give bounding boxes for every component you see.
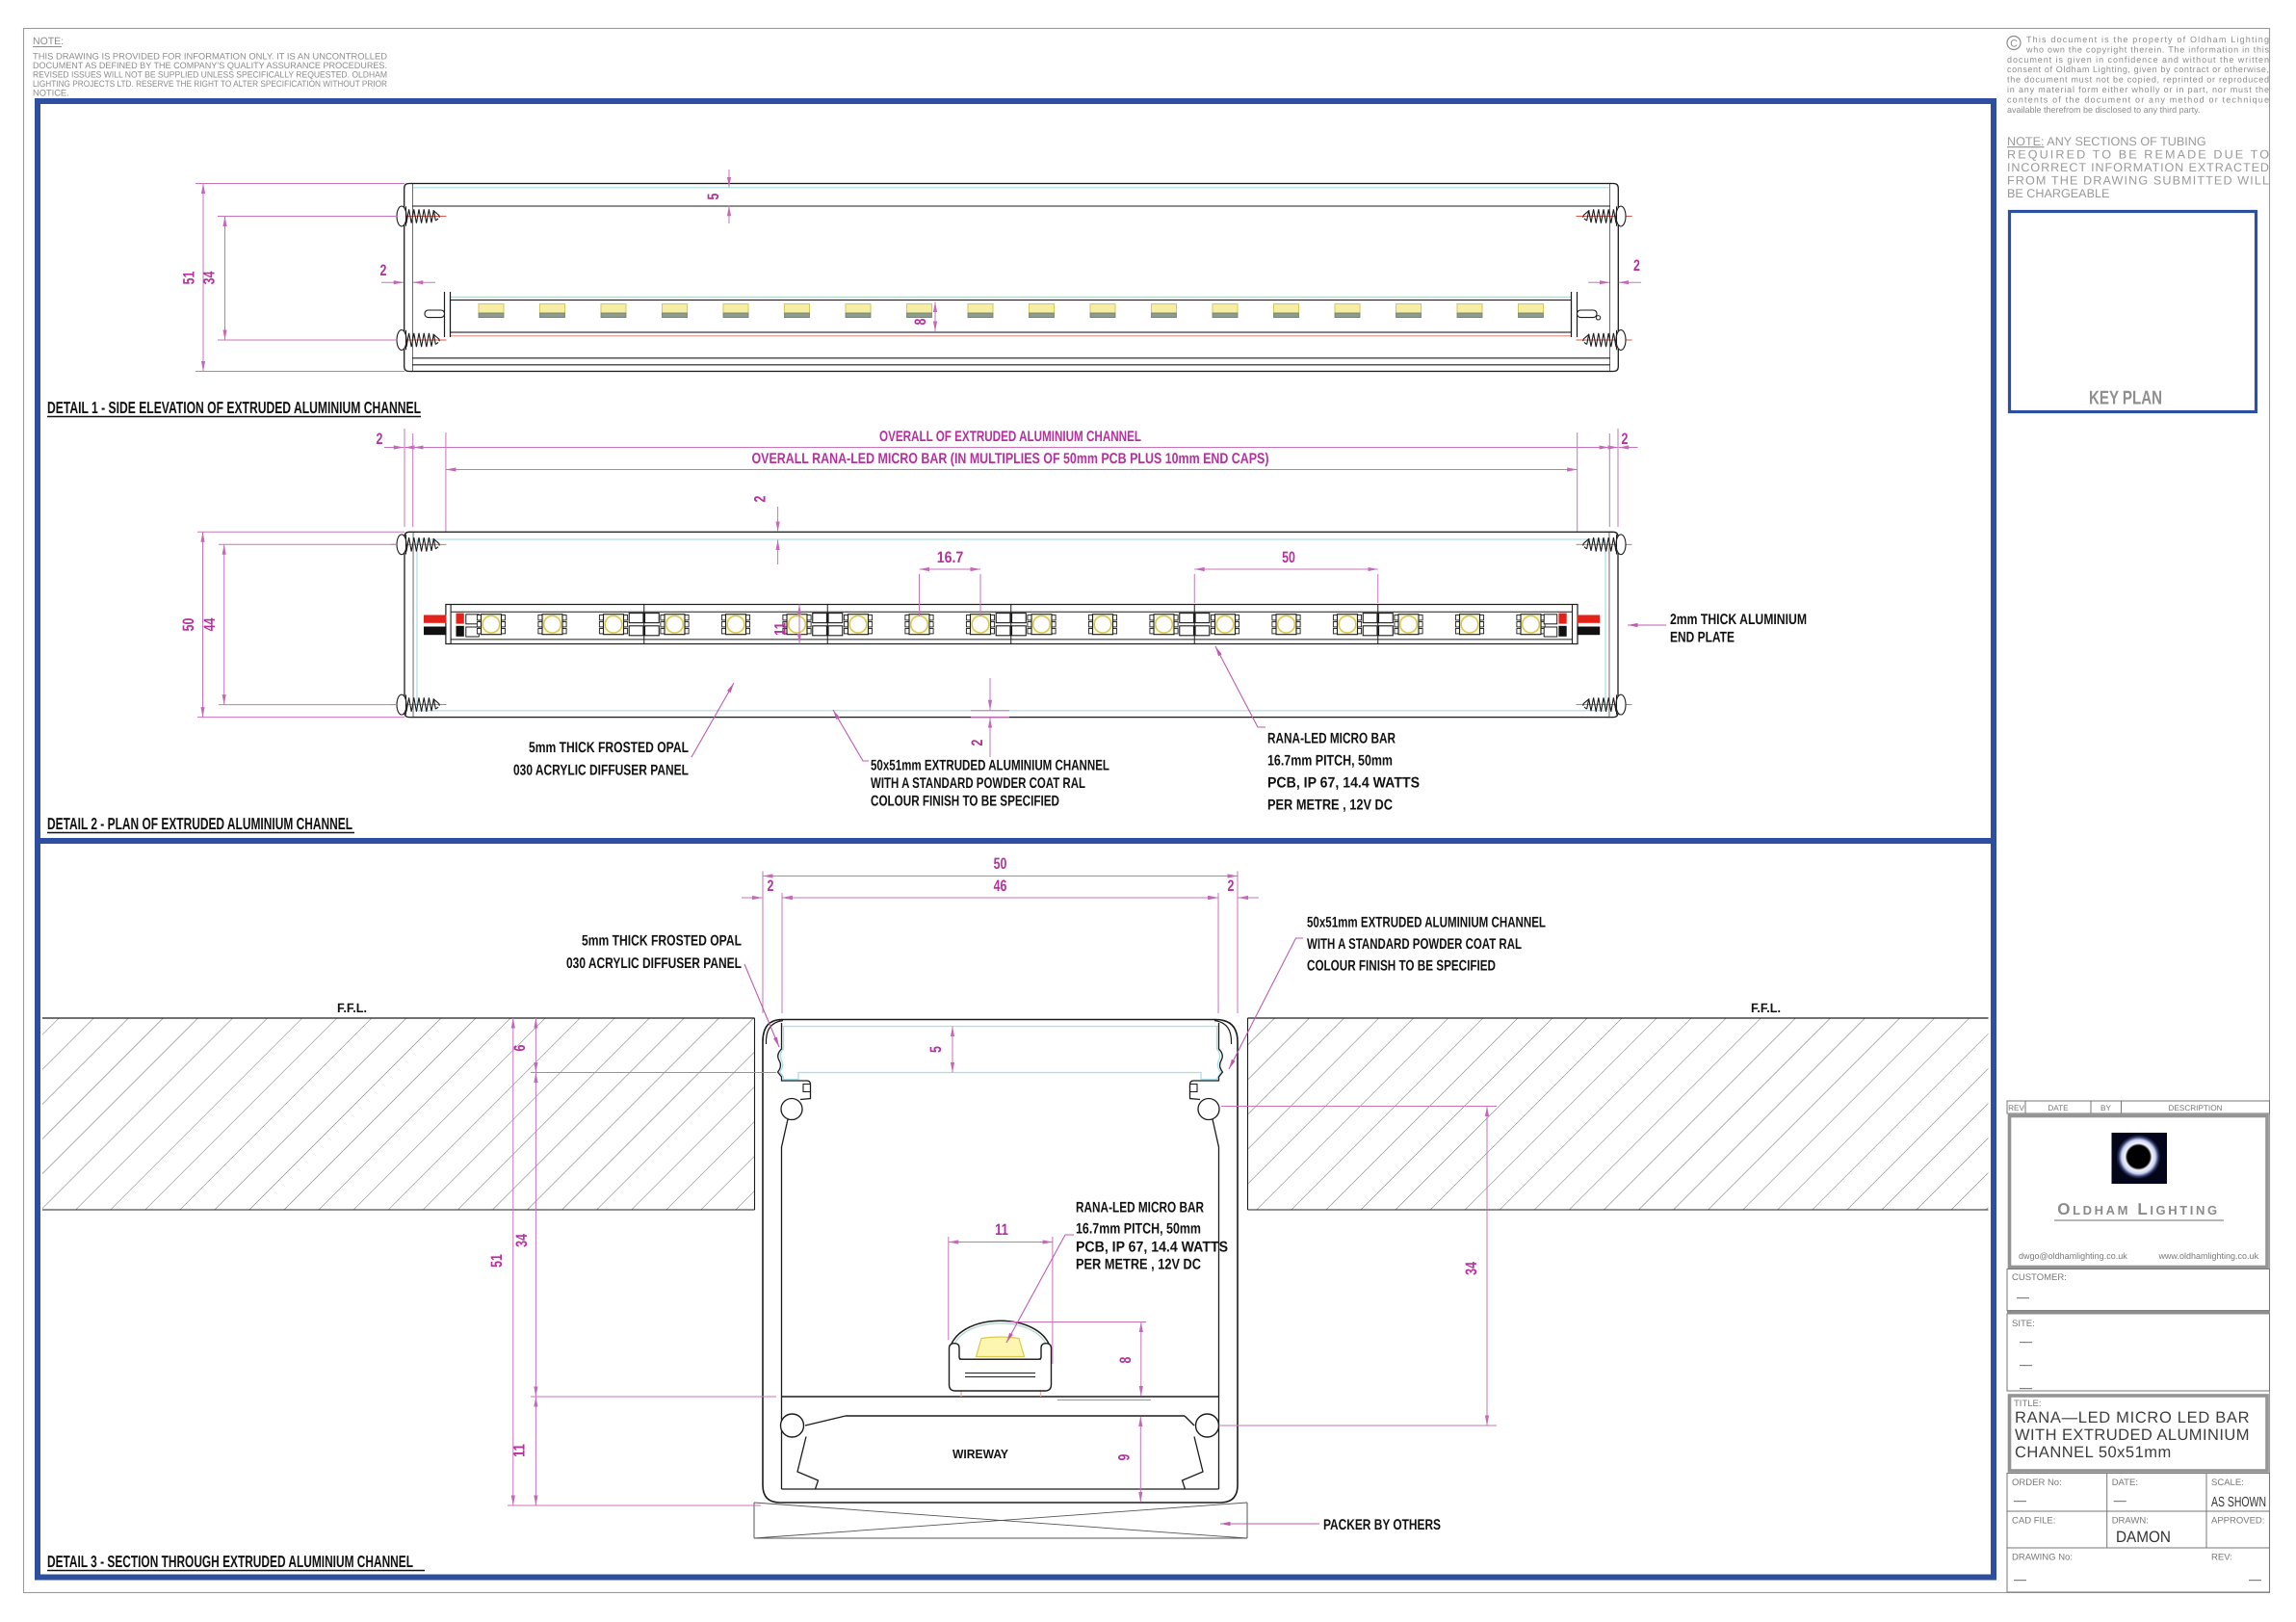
svg-text:6: 6 bbox=[511, 1045, 529, 1052]
svg-text:DAMON: DAMON bbox=[2116, 1529, 2171, 1546]
svg-text:This document is the property: This document is the property of Oldham … bbox=[2026, 35, 2269, 44]
svg-text:50: 50 bbox=[1282, 549, 1295, 566]
svg-text:—: — bbox=[2014, 1572, 2026, 1586]
svg-text:DETAIL 3 - SECTION THROUGH EXT: DETAIL 3 - SECTION THROUGH EXTRUDED ALUM… bbox=[47, 1552, 413, 1571]
svg-text:WIREWAY: WIREWAY bbox=[952, 1447, 1008, 1461]
svg-text:2mm THICK ALUMINIUM: 2mm THICK ALUMINIUM bbox=[1670, 612, 1807, 628]
svg-text:50: 50 bbox=[180, 618, 197, 632]
svg-text:2: 2 bbox=[377, 431, 383, 448]
svg-text:available therefrom be disclos: available therefrom be disclosed to any … bbox=[2007, 105, 2200, 115]
svg-text:COLOUR FINISH TO BE SPECIFIED: COLOUR FINISH TO BE SPECIFIED bbox=[1307, 958, 1496, 975]
svg-text:DOCUMENT AS DEFINED BY THE COM: DOCUMENT AS DEFINED BY THE COMPANY’S QUA… bbox=[33, 61, 387, 70]
svg-text:APPROVED:: APPROVED: bbox=[2211, 1516, 2264, 1527]
svg-text:BE CHARGEABLE: BE CHARGEABLE bbox=[2007, 187, 2109, 200]
svg-text:DETAIL 2 - PLAN OF EXTRUDED AL: DETAIL 2 - PLAN OF EXTRUDED ALUMINIUM CH… bbox=[47, 814, 352, 833]
svg-text:44: 44 bbox=[201, 617, 219, 631]
svg-text:CUSTOMER:: CUSTOMER: bbox=[2012, 1272, 2067, 1283]
svg-text:2: 2 bbox=[1622, 431, 1629, 448]
svg-text:INCORRECT INFORMATION EXTRACTE: INCORRECT INFORMATION EXTRACTED bbox=[2007, 161, 2269, 174]
svg-text:document is given in confidenc: document is given in confidence and with… bbox=[2007, 55, 2269, 65]
svg-text:WITH A STANDARD POWDER COAT RA: WITH A STANDARD POWDER COAT RAL bbox=[871, 775, 1085, 792]
svg-text:PACKER BY OTHERS: PACKER BY OTHERS bbox=[1323, 1517, 1441, 1533]
svg-text:RANA—LED MICRO LED BAR: RANA—LED MICRO LED BAR bbox=[2015, 1409, 2250, 1426]
svg-text:—: — bbox=[2249, 1572, 2261, 1586]
svg-text:34: 34 bbox=[201, 271, 219, 284]
svg-text:THIS DRAWING IS PROVIDED FOR I: THIS DRAWING IS PROVIDED FOR INFORMATION… bbox=[33, 51, 387, 61]
svg-text:50x51mm EXTRUDED ALUMINIUM CHA: 50x51mm EXTRUDED ALUMINIUM CHANNEL bbox=[1307, 915, 1546, 931]
svg-text:16.7: 16.7 bbox=[937, 549, 964, 566]
svg-text:BY: BY bbox=[2100, 1104, 2111, 1112]
svg-text:11: 11 bbox=[511, 1444, 529, 1457]
svg-text:RANA-LED MICRO BAR: RANA-LED MICRO BAR bbox=[1076, 1200, 1204, 1216]
svg-text:CHANNEL 50x51mm: CHANNEL 50x51mm bbox=[2015, 1444, 2172, 1461]
svg-text:—: — bbox=[2014, 1493, 2026, 1507]
svg-text:DRAWING No:: DRAWING No: bbox=[2012, 1553, 2073, 1563]
svg-text:2: 2 bbox=[969, 740, 986, 746]
svg-text:AS SHOWN: AS SHOWN bbox=[2211, 1495, 2266, 1510]
svg-text:51: 51 bbox=[488, 1254, 506, 1268]
svg-text:SCALE:: SCALE: bbox=[2211, 1478, 2244, 1488]
svg-text:51: 51 bbox=[181, 272, 198, 285]
svg-text:www.oldhamlighting.co.uk: www.oldhamlighting.co.uk bbox=[2157, 1251, 2258, 1261]
svg-text:PER METRE , 12V DC: PER METRE , 12V DC bbox=[1076, 1257, 1201, 1273]
svg-text:030 ACRYLIC DIFFUSER PANEL: 030 ACRYLIC DIFFUSER PANEL bbox=[513, 763, 689, 779]
svg-text:030 ACRYLIC DIFFUSER PANEL: 030 ACRYLIC DIFFUSER PANEL bbox=[566, 955, 742, 972]
svg-text:REVISED ISSUES WILL NOT BE SUP: REVISED ISSUES WILL NOT BE SUPPLIED UNLE… bbox=[33, 70, 387, 80]
svg-text:PER METRE , 12V DC: PER METRE , 12V DC bbox=[1267, 798, 1393, 814]
svg-text:8: 8 bbox=[912, 319, 929, 326]
svg-text:2: 2 bbox=[768, 877, 774, 895]
svg-text:2: 2 bbox=[752, 496, 770, 503]
svg-text:dwgo@oldhamlighting.co.uk: dwgo@oldhamlighting.co.uk bbox=[2019, 1251, 2127, 1261]
svg-text:NOTE:: NOTE: bbox=[33, 36, 64, 47]
svg-text:34: 34 bbox=[513, 1233, 531, 1246]
svg-text:KEY PLAN: KEY PLAN bbox=[2089, 388, 2162, 409]
svg-text:CAD FILE:: CAD FILE: bbox=[2012, 1516, 2055, 1527]
svg-text:50: 50 bbox=[994, 855, 1007, 873]
svg-text:50x51mm EXTRUDED ALUMINIUM CHA: 50x51mm EXTRUDED ALUMINIUM CHANNEL bbox=[871, 758, 1109, 774]
svg-text:ORDER No:: ORDER No: bbox=[2012, 1478, 2062, 1488]
svg-text:NOTICE.: NOTICE. bbox=[33, 89, 69, 98]
svg-text:16.7mm PITCH, 50mm: 16.7mm PITCH, 50mm bbox=[1076, 1221, 1201, 1238]
svg-text:who own the copyright therein.: who own the copyright therein. The infor… bbox=[2025, 44, 2270, 54]
svg-text:16.7mm PITCH, 50mm: 16.7mm PITCH, 50mm bbox=[1267, 753, 1393, 770]
svg-text:—: — bbox=[2020, 1357, 2032, 1372]
svg-text:TITLE:: TITLE: bbox=[2014, 1399, 2042, 1409]
svg-text:WITH A STANDARD POWDER COAT RA: WITH A STANDARD POWDER COAT RAL bbox=[1307, 936, 1522, 953]
svg-text:F.F.L.: F.F.L. bbox=[337, 1001, 367, 1015]
svg-text:—: — bbox=[2114, 1493, 2126, 1507]
svg-text:C: C bbox=[2010, 38, 2018, 49]
svg-text:DETAIL 1 - SIDE ELEVATION OF E: DETAIL 1 - SIDE ELEVATION OF EXTRUDED AL… bbox=[47, 398, 421, 417]
svg-text:REQUIRED TO BE REMADE DUE TO: REQUIRED TO BE REMADE DUE TO bbox=[2007, 148, 2269, 162]
svg-text:—: — bbox=[2020, 1380, 2032, 1395]
svg-text:DATE: DATE bbox=[2048, 1104, 2069, 1112]
svg-text:NOTE: ANY SECTIONS OF TUBING: NOTE: ANY SECTIONS OF TUBING bbox=[2007, 135, 2206, 148]
svg-text:DRAWN:: DRAWN: bbox=[2112, 1516, 2149, 1527]
svg-text:PCB, IP 67, 14.4 WATTS: PCB, IP 67, 14.4 WATTS bbox=[1267, 775, 1420, 792]
svg-text:—: — bbox=[2020, 1334, 2032, 1348]
svg-text:5: 5 bbox=[705, 194, 722, 200]
svg-text:F.F.L.: F.F.L. bbox=[1751, 1001, 1781, 1015]
svg-text:11: 11 bbox=[772, 622, 790, 636]
svg-text:REV:: REV: bbox=[2211, 1553, 2232, 1563]
svg-text:PCB, IP 67, 14.4 WATTS: PCB, IP 67, 14.4 WATTS bbox=[1076, 1240, 1228, 1256]
svg-text:46: 46 bbox=[994, 877, 1007, 895]
svg-text:the document must not be copie: the document must not be copied, reprint… bbox=[2007, 75, 2269, 85]
svg-text:LIGHTING PROJECTS LTD. RESERVE: LIGHTING PROJECTS LTD. RESERVE THE RIGHT… bbox=[33, 79, 387, 89]
svg-text:2: 2 bbox=[380, 262, 387, 279]
svg-text:DATE:: DATE: bbox=[2112, 1478, 2138, 1488]
svg-text:9: 9 bbox=[1116, 1454, 1134, 1461]
svg-text:OVERALL RANA-LED MICRO BAR (IN: OVERALL RANA-LED MICRO BAR (IN MULTIPLIE… bbox=[752, 451, 1269, 467]
svg-text:5mm THICK FROSTED OPAL: 5mm THICK FROSTED OPAL bbox=[529, 740, 689, 756]
svg-text:RANA-LED MICRO BAR: RANA-LED MICRO BAR bbox=[1267, 731, 1396, 747]
svg-text:2: 2 bbox=[1633, 257, 1640, 275]
svg-text:WITH EXTRUDED ALUMINIUM: WITH EXTRUDED ALUMINIUM bbox=[2015, 1426, 2250, 1444]
svg-text:FROM THE DRAWING SUBMITTED WIL: FROM THE DRAWING SUBMITTED WILL bbox=[2007, 174, 2269, 188]
svg-text:5: 5 bbox=[927, 1046, 945, 1053]
svg-text:in any material form either wh: in any material form either wholly or in… bbox=[2007, 85, 2269, 94]
svg-text:34: 34 bbox=[1463, 1261, 1480, 1274]
svg-text:REV: REV bbox=[2008, 1104, 2024, 1112]
svg-text:SITE:: SITE: bbox=[2012, 1319, 2035, 1329]
svg-text:END PLATE: END PLATE bbox=[1670, 630, 1735, 646]
svg-text:consent of Oldham Lighting, gi: consent of Oldham Lighting, given by con… bbox=[2007, 65, 2269, 74]
svg-text:OVERALL OF EXTRUDED ALUMINIUM: OVERALL OF EXTRUDED ALUMINIUM CHANNEL bbox=[879, 429, 1141, 445]
svg-text:DESCRIPTION: DESCRIPTION bbox=[2169, 1104, 2223, 1112]
svg-text:2: 2 bbox=[1228, 877, 1235, 895]
svg-text:5mm THICK FROSTED OPAL: 5mm THICK FROSTED OPAL bbox=[582, 933, 742, 950]
svg-text:COLOUR FINISH TO BE SPECIFIED: COLOUR FINISH TO BE SPECIFIED bbox=[871, 794, 1059, 810]
svg-text:11: 11 bbox=[995, 1221, 1008, 1239]
svg-text:8: 8 bbox=[1117, 1357, 1135, 1364]
svg-text:OLDHAM LIGHTING: OLDHAM LIGHTING bbox=[2057, 1200, 2219, 1218]
svg-text:—: — bbox=[2017, 1290, 2029, 1304]
svg-text:contents of the document or an: contents of the document or any method o… bbox=[2007, 94, 2269, 104]
